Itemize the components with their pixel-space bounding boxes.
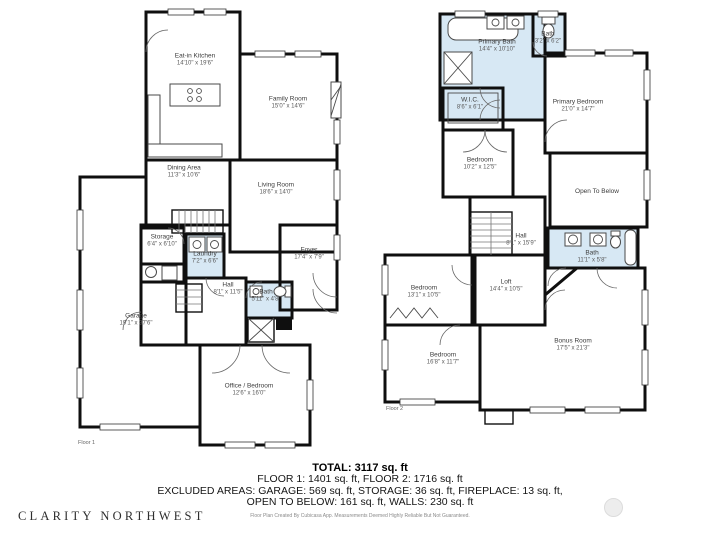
room-name: Living Room [258, 182, 294, 190]
room-name: Foyer [294, 247, 324, 255]
room-name: Laundry [192, 251, 218, 259]
room-label-office-bedroom: Office / Bedroom 12'6" x 16'0" [225, 383, 274, 398]
room-dims: 12'6" x 16'0" [225, 391, 274, 398]
room-dims: 18'6" x 14'0" [258, 190, 294, 197]
room-name: Primary Bath [478, 39, 516, 47]
room-name: Storage [147, 234, 177, 242]
floor1-plan [77, 9, 341, 448]
room-label-storage: Storage 6'4" x 6'10" [147, 234, 177, 249]
floor-areas: FLOOR 1: 1401 sq. ft, FLOOR 2: 1716 sq. … [0, 474, 720, 486]
room-dims: 8'1" x 11'5" [213, 290, 242, 297]
watermark-icon [604, 498, 623, 517]
room-label-bonus-room: Bonus Room 17'5" x 21'3" [554, 338, 592, 353]
room-dims: 5'11" x 4'8" [251, 297, 280, 304]
room-dims: 17'5" x 21'3" [554, 346, 592, 353]
clarity-northwest-logo: CLARITY NORTHWEST [18, 509, 206, 524]
room-name: Hall [506, 233, 536, 241]
room-label-primary-bedroom: Primary Bedroom 21'0" x 14'7" [553, 99, 604, 114]
floor-plan-drawing [0, 0, 720, 540]
room-label-bath-f2: Bath 11'1" x 5'8" [577, 250, 606, 265]
room-dims: 14'10" x 19'6" [175, 61, 215, 68]
room-dims: 15'0" x 14'6" [269, 104, 307, 111]
room-name: Eat-in Kitchen [175, 53, 215, 61]
room-dims: 13'1" x 10'5" [408, 293, 441, 300]
room-name: W.I.C. [457, 97, 483, 105]
room-label-open-to-below: Open To Below [575, 188, 619, 196]
room-name: Bath [577, 250, 606, 258]
room-label-bedroom-f2c: Bedroom 16'8" x 11'7" [427, 352, 459, 367]
room-label-dining-area: Dining Area 11'3" x 10'6" [167, 165, 201, 180]
room-label-living-room: Living Room 18'6" x 14'0" [258, 182, 294, 197]
room-dims: 3'2" x 6'2" [535, 39, 561, 46]
room-name: Bedroom [408, 285, 441, 293]
room-label-bedroom-f2b: Bedroom 13'1" x 10'5" [408, 285, 441, 300]
toilet-icon [611, 231, 620, 236]
room-dims: 11'1" x 5'8" [577, 258, 606, 265]
room-label-bedroom-f2a: Bedroom 10'2" x 12'5" [464, 157, 497, 172]
room-dims: 16'8" x 11'7" [427, 360, 459, 367]
bifold-closet-doors [390, 308, 438, 318]
room-label-laundry: Laundry 7'2" x 6'6" [192, 251, 218, 266]
room-label-hall-f2: Hall 8'1" x 15'9" [506, 233, 536, 248]
floor1-fixtures [146, 82, 342, 342]
room-dims: 19'1" x 37'6" [120, 321, 153, 328]
kitchen-island [170, 84, 220, 106]
room-name: Office / Bedroom [225, 383, 274, 391]
room-name: Family Room [269, 96, 307, 104]
sink-icon [487, 16, 504, 29]
room-label-hall-f1: Hall 8'1" x 11'5" [213, 282, 242, 297]
room-name: Bedroom [427, 352, 459, 360]
toilet-icon [542, 17, 555, 24]
room-label-loft: Loft 14'4" x 10'5" [490, 279, 523, 294]
room-label-primary-bath: Primary Bath 14'4" x 10'10" [478, 39, 516, 54]
room-dims: 14'4" x 10'10" [478, 47, 516, 54]
room-name: Bedroom [464, 157, 497, 165]
floor2-plan [382, 11, 650, 424]
room-name: Dining Area [167, 165, 201, 173]
room-name: Garage [120, 313, 153, 321]
kitchen-counter [148, 144, 222, 157]
floor-plan-page: Eat-in Kitchen 14'10" x 19'6" Family Roo… [0, 0, 720, 540]
room-name: Bath [251, 289, 280, 297]
room-name: Loft [490, 279, 523, 287]
room-dims: 10'2" x 12'5" [464, 165, 497, 172]
room-label-wic: W.I.C. 8'6" x 6'1" [457, 97, 483, 112]
room-name: Bonus Room [554, 338, 592, 346]
room-label-bath-small: Bath 3'2" x 6'2" [535, 31, 561, 46]
room-dims: 11'3" x 10'6" [167, 173, 201, 180]
room-dims: 7'2" x 6'6" [192, 259, 218, 266]
floor1-label: Floor 1 [78, 440, 95, 446]
room-name: Open To Below [575, 188, 619, 196]
floor1-windows [77, 9, 340, 448]
room-label-eat-in-kitchen: Eat-in Kitchen 14'10" x 19'6" [175, 53, 215, 68]
room-label-bath-f1: Bath 5'11" x 4'8" [251, 289, 280, 304]
room-label-foyer: Foyer 17'4" x 7'9" [294, 247, 324, 262]
room-dims: 14'4" x 10'5" [490, 287, 523, 294]
room-name: Primary Bedroom [553, 99, 604, 107]
room-label-family-room: Family Room 15'0" x 14'6" [269, 96, 307, 111]
room-dims: 8'1" x 15'9" [506, 241, 536, 248]
utility-sink-icon [146, 267, 157, 278]
room-dims: 6'4" x 6'10" [147, 242, 177, 249]
room-dims: 17'4" x 7'9" [294, 255, 324, 262]
room-dims: 8'6" x 6'1" [457, 105, 483, 112]
room-label-garage: Garage 19'1" x 37'6" [120, 313, 153, 328]
room-name: Hall [213, 282, 242, 290]
room-dims: 21'0" x 14'7" [553, 107, 604, 114]
bathtub-icon [625, 230, 636, 265]
sink-icon [507, 16, 524, 29]
floor2-label: Floor 2 [386, 406, 403, 412]
room-name: Bath [535, 31, 561, 39]
